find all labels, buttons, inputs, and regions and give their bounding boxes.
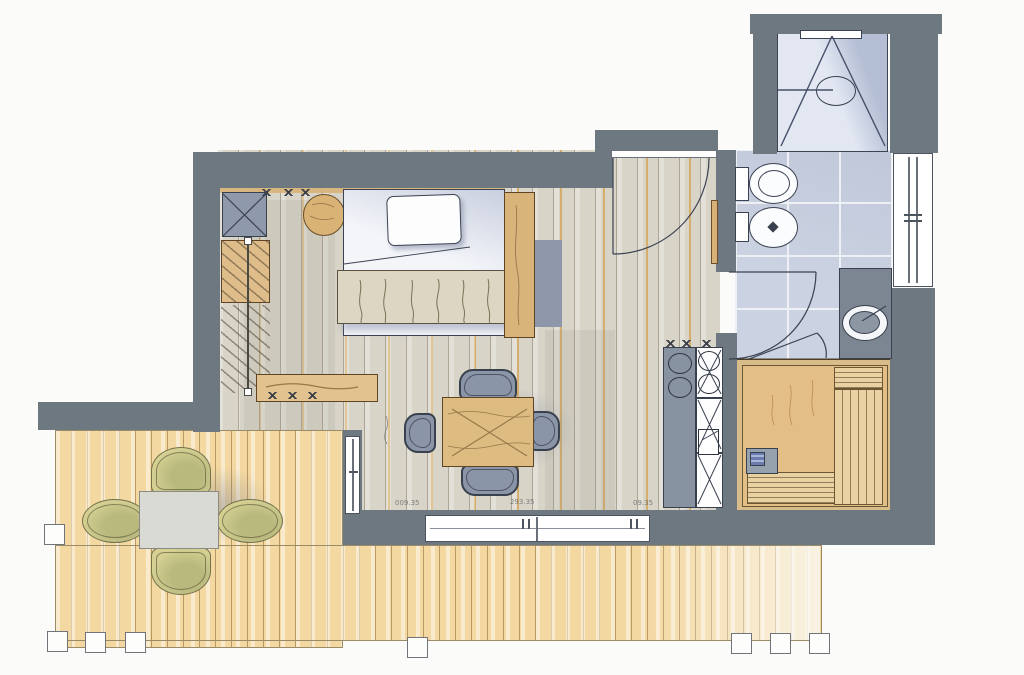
- railing-post: [731, 633, 752, 654]
- deck-faded-edge: [640, 546, 820, 640]
- floor-plan-canvas: 009.35 293.35 09.35: [0, 0, 1024, 675]
- wall-right-upper: [890, 32, 938, 153]
- terrace-chair: [151, 547, 211, 595]
- dining-table-symbol: [442, 397, 534, 467]
- sauna-bench-bottom: [747, 472, 835, 504]
- terrace-chair: [217, 499, 283, 543]
- wall-top: [193, 152, 613, 188]
- shower-head-symbol: [816, 76, 856, 106]
- toilet-bowl-inner: [758, 170, 790, 197]
- window-tick: [636, 519, 638, 529]
- dimension-annotation: 09.35: [633, 500, 653, 507]
- window-tick: [630, 519, 632, 529]
- window-terrace-side-door: [345, 436, 360, 514]
- fastener-mark: [268, 392, 277, 399]
- window-terrace-sliding: [425, 515, 650, 542]
- wall-left: [193, 152, 220, 432]
- hob-burner: [668, 377, 692, 398]
- fastener-mark: [262, 189, 271, 196]
- sauna-bench-upper: [834, 367, 883, 389]
- railing-post: [47, 631, 68, 652]
- wall-terrace-top: [38, 402, 220, 430]
- dimension-annotation: 293.35: [510, 499, 535, 506]
- wall-shower-left: [753, 14, 777, 154]
- window-mullion: [536, 517, 538, 541]
- hob-burner: [698, 374, 720, 394]
- hob-burner: [668, 353, 692, 374]
- window-tick: [528, 519, 530, 529]
- wall-right-lower: [890, 288, 935, 545]
- shower-fixture-bar: [800, 30, 862, 39]
- fastener-mark: [301, 189, 310, 196]
- dining-chair: [404, 413, 436, 453]
- closet-shelf: [221, 240, 270, 303]
- sauna-heater-grid: [750, 452, 765, 466]
- entry-door-opening: [611, 150, 717, 158]
- fastener-mark: [666, 340, 675, 347]
- kitchen-unit-divider: [697, 397, 722, 399]
- railing-post: [770, 633, 791, 654]
- railing-post: [85, 632, 106, 653]
- cabinet-shadow-panel: [535, 240, 562, 327]
- wall-bath-left-upper: [716, 150, 736, 272]
- window-tick: [904, 214, 922, 216]
- fastener-mark: [308, 392, 317, 399]
- fastener-mark: [682, 340, 691, 347]
- window-tick: [349, 471, 358, 473]
- bed-blanket: [337, 270, 505, 324]
- fastener-mark: [284, 189, 293, 196]
- washbasin-inner: [849, 311, 880, 334]
- kitchen-sink-symbol: [698, 429, 719, 455]
- terrace-chair: [151, 447, 211, 495]
- railing-post: [125, 632, 146, 653]
- window-tick: [522, 519, 524, 529]
- toilet-cistern: [735, 167, 749, 201]
- wardrobe-symbol: [504, 192, 535, 338]
- terrace-table-symbol: [139, 491, 219, 549]
- closet-rail-end: [244, 237, 252, 245]
- sauna-bench-right: [834, 389, 883, 505]
- door-jamb-strip: [711, 200, 718, 264]
- dimension-annotation: 009.35: [395, 500, 420, 507]
- window-tick: [904, 220, 922, 222]
- hob-burner: [698, 351, 720, 371]
- closet-rail-end: [244, 388, 252, 396]
- kitchen-tall-units: [696, 347, 723, 508]
- shaft-symbol: [222, 192, 267, 237]
- closet-rail: [247, 240, 249, 392]
- bed-pillow: [386, 194, 462, 247]
- dining-chair: [461, 464, 519, 496]
- stool-symbol: [303, 194, 345, 236]
- fastener-mark: [288, 392, 297, 399]
- fastener-mark: [702, 340, 711, 347]
- railing-post: [407, 637, 428, 658]
- window-bathroom: [893, 153, 933, 287]
- railing-post: [809, 633, 830, 654]
- window-glass-line: [352, 439, 354, 512]
- railing-post: [44, 524, 65, 545]
- bidet-cistern: [735, 212, 749, 242]
